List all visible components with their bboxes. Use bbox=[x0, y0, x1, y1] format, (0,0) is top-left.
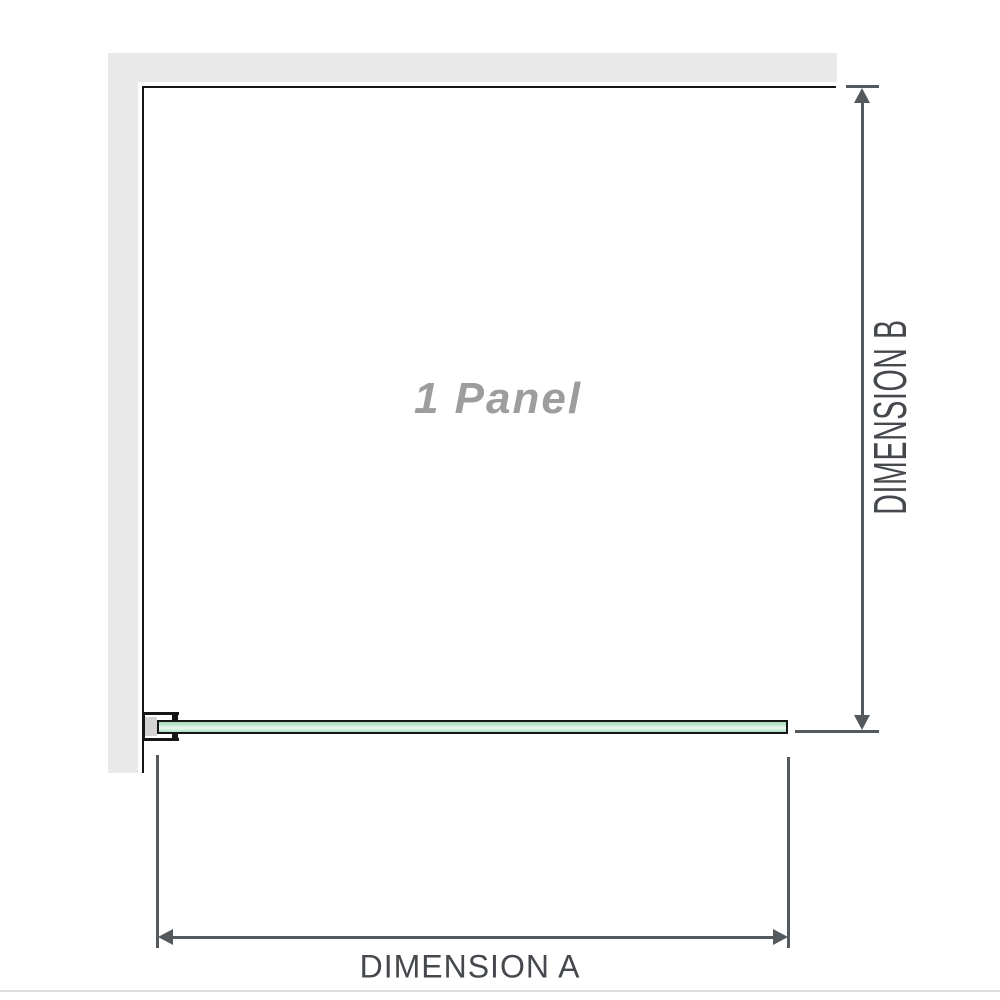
glass-panel bbox=[157, 720, 788, 734]
shower-panel-dimension-diagram: 1 Panel DIMENSION B DIMENSION A bbox=[0, 0, 1000, 1000]
bracket-pad bbox=[145, 717, 157, 736]
wall-face-line-left bbox=[142, 86, 144, 773]
bottom-separator-line bbox=[0, 990, 1000, 992]
wall-face-line-top bbox=[143, 86, 836, 88]
dimension-b-label: DIMENSION B bbox=[863, 319, 917, 514]
panel-count-label: 1 Panel bbox=[414, 374, 582, 424]
wall-top bbox=[108, 53, 837, 82]
dimension-a-extension-left bbox=[156, 755, 159, 948]
arrow-up-icon bbox=[854, 88, 870, 103]
arrow-right-icon bbox=[773, 929, 788, 945]
dimension-a-label: DIMENSION A bbox=[360, 949, 581, 986]
wall-left bbox=[108, 53, 138, 773]
arrow-down-icon bbox=[854, 715, 870, 730]
dimension-b-tick-bottom bbox=[795, 730, 879, 733]
dimension-a-line bbox=[170, 936, 775, 939]
dimension-a-extension-right bbox=[787, 757, 790, 948]
arrow-left-icon bbox=[158, 929, 173, 945]
